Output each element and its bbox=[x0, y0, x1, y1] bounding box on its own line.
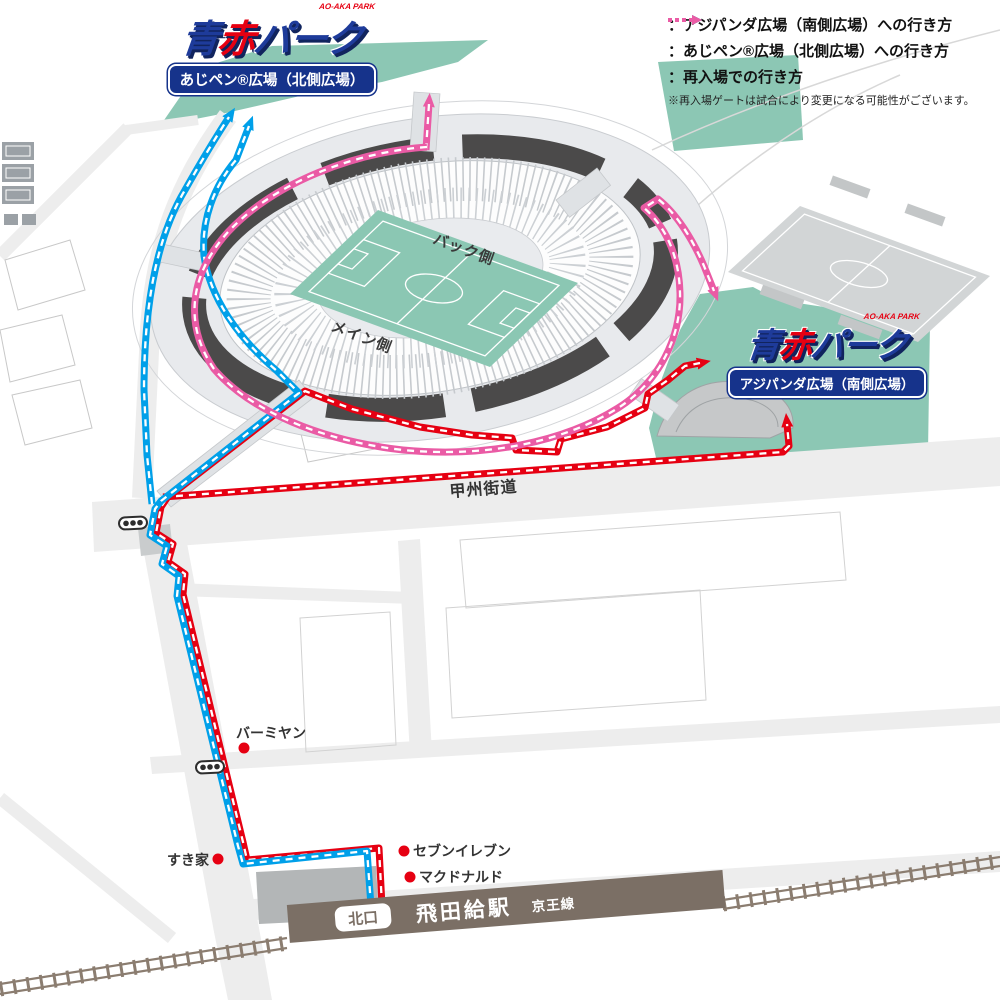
seven-eleven-label: セブンイレブン bbox=[413, 843, 511, 859]
north-plaza-callout: 青赤パークAO-AKA PARK あじペン®広場（北側広場） bbox=[152, 8, 392, 95]
pink-dashed-arrow-icon bbox=[668, 14, 704, 26]
logo-aka: 赤 bbox=[777, 327, 813, 365]
logo-sub-text: AO-AKA PARK bbox=[319, 2, 376, 11]
traffic-signal-koshu bbox=[119, 516, 148, 529]
legend-row-south: ：アジパンダ広場（南側広場）への行き方 bbox=[668, 14, 988, 35]
legend-label-north: ：あじペン®広場（北側広場）への行き方 bbox=[668, 40, 949, 61]
north-plaza-label: あじペン®広場（北側広場） bbox=[168, 64, 377, 95]
road-short-street bbox=[176, 583, 413, 604]
road-mid-vertical bbox=[398, 539, 432, 755]
logo-park: パーク bbox=[809, 327, 909, 365]
legend-note: ※再入場ゲートは試合により変更になる可能性がございます。 bbox=[668, 92, 988, 108]
legend: ：アジパンダ広場（南側広場）への行き方 ：あじペン®広場（北側広場）への行き方 … bbox=[668, 14, 988, 108]
legend-label-reentry: ：再入場での行き方 bbox=[668, 66, 803, 87]
logo-ao: 青 bbox=[745, 327, 781, 365]
north-exit-label: 北口 bbox=[348, 909, 379, 928]
legend-row-reentry: ：再入場での行き方 bbox=[668, 66, 988, 87]
sukiya-dot bbox=[213, 854, 224, 865]
logo-aka: 赤 bbox=[215, 19, 255, 61]
sukiya-label: すき家 bbox=[167, 852, 210, 868]
map-canvas: バック側 メイン側 甲州街道 bbox=[0, 0, 1000, 1000]
aoaka-park-logo: 青赤パークAO-AKA PARK bbox=[744, 318, 909, 367]
south-plaza-label: アジパンダ広場（南側広場） bbox=[728, 368, 927, 398]
bamiyan-dot bbox=[239, 743, 250, 754]
mcdonalds-dot bbox=[405, 872, 416, 883]
logo-ao: 青 bbox=[179, 19, 219, 61]
traffic-signal-cross bbox=[196, 760, 225, 773]
road-bottom-left-diagonal bbox=[0, 798, 172, 938]
access-map: バック側 メイン側 甲州街道 bbox=[0, 0, 1000, 1000]
west-courts bbox=[2, 142, 36, 225]
block-outlines bbox=[300, 512, 846, 752]
seven-eleven-dot bbox=[399, 846, 410, 857]
logo-park: パーク bbox=[251, 19, 363, 61]
south-plaza-callout: 青赤パークAO-AKA PARK アジパンダ広場（南側広場） bbox=[722, 318, 932, 398]
aoaka-park-logo: 青赤パークAO-AKA PARK bbox=[179, 8, 365, 63]
legend-label-south: ：アジパンダ広場（南側広場）への行き方 bbox=[668, 14, 952, 35]
mcdonalds-label: マクドナルド bbox=[419, 869, 503, 885]
logo-sub-text: AO-AKA PARK bbox=[863, 312, 920, 321]
bamiyan-label: バーミヤン bbox=[236, 725, 306, 741]
road-upper-left-spur bbox=[126, 120, 198, 130]
legend-row-north: ：あじペン®広場（北側広場）への行き方 bbox=[668, 40, 988, 61]
